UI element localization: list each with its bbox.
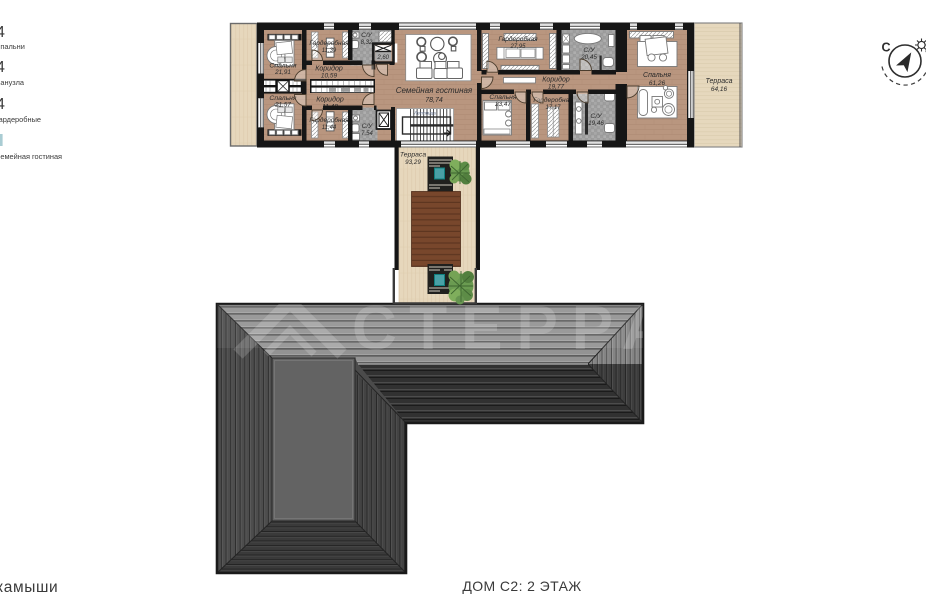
svg-text:Семейная гостиная: Семейная гостиная (0, 152, 62, 161)
svg-text:Спальни: Спальни (0, 42, 25, 51)
svg-text:61,26: 61,26 (649, 80, 666, 87)
svg-text:Гардеробные: Гардеробные (0, 115, 41, 124)
svg-text:4: 4 (0, 24, 5, 41)
svg-text:Спальня: Спальня (489, 94, 517, 101)
svg-text:78,74: 78,74 (425, 97, 443, 104)
svg-text:2,60: 2,60 (376, 55, 389, 61)
svg-text:Гардеробная: Гардеробная (309, 39, 349, 47)
svg-text:7,54: 7,54 (361, 131, 373, 137)
svg-text:Семейная гостиная: Семейная гостиная (396, 86, 473, 95)
svg-text:23,47: 23,47 (494, 101, 511, 108)
svg-text:ДОМ С2: 2 ЭТАЖ: ДОМ С2: 2 ЭТАЖ (462, 578, 581, 594)
svg-text:11,39: 11,39 (322, 48, 337, 54)
svg-text:Гардеробная: Гардеробная (498, 35, 538, 43)
svg-text:21,57: 21,57 (274, 102, 291, 109)
svg-text:Санузла: Санузла (0, 78, 25, 87)
svg-text:Терраса: Терраса (705, 78, 732, 85)
svg-text:камыши: камыши (0, 579, 58, 596)
svg-text:Лестница: Лестница (413, 111, 436, 116)
svg-text:С/У: С/У (361, 32, 373, 39)
svg-text:11,44: 11,44 (322, 125, 337, 131)
svg-text:10,59: 10,59 (321, 73, 338, 80)
svg-text:Коридор: Коридор (315, 65, 343, 73)
svg-text:С: С (881, 41, 890, 55)
svg-text:С/У: С/У (362, 123, 374, 130)
svg-text:4: 4 (0, 59, 5, 76)
svg-text:27,95: 27,95 (509, 44, 526, 50)
svg-text:8,32: 8,32 (361, 40, 373, 46)
svg-text:19,46: 19,46 (588, 120, 604, 127)
svg-text:19,77: 19,77 (548, 84, 565, 91)
svg-text:93,29: 93,29 (405, 159, 421, 166)
svg-text:Терраса: Терраса (400, 152, 426, 159)
svg-text:С/У: С/У (590, 113, 602, 120)
svg-text:64,16: 64,16 (711, 86, 728, 93)
svg-text:Коридор: Коридор (316, 96, 344, 104)
svg-text:С/У: С/У (583, 47, 595, 54)
svg-text:17,17: 17,17 (545, 105, 561, 111)
svg-text:Коридор: Коридор (542, 76, 570, 84)
svg-text:21,91: 21,91 (274, 69, 291, 76)
svg-text:Спальня: Спальня (643, 72, 671, 79)
svg-text:4: 4 (0, 96, 5, 113)
